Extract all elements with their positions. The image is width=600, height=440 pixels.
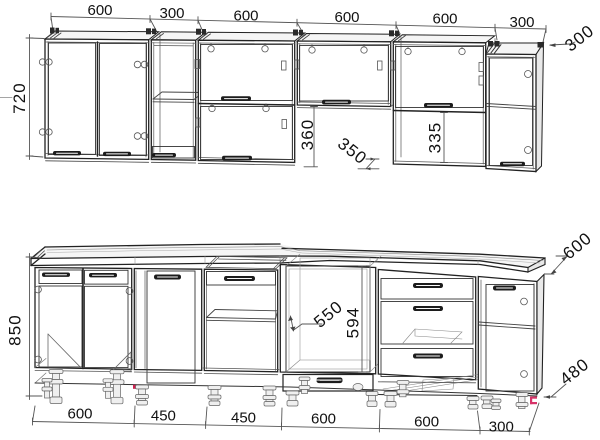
svg-text:450: 450 [231, 409, 256, 426]
svg-text:600: 600 [311, 410, 336, 427]
svg-text:600: 600 [233, 8, 258, 25]
svg-text:600: 600 [87, 2, 112, 19]
svg-text:300: 300 [561, 21, 598, 55]
svg-text:335: 335 [426, 122, 445, 154]
svg-text:600: 600 [334, 9, 359, 26]
svg-text:480: 480 [556, 354, 593, 388]
svg-text:300: 300 [509, 14, 534, 31]
svg-text:600: 600 [432, 11, 457, 28]
svg-text:450: 450 [151, 407, 176, 424]
svg-text:300: 300 [489, 418, 514, 435]
svg-text:360: 360 [298, 119, 317, 151]
svg-text:300: 300 [159, 5, 184, 22]
svg-text:720: 720 [10, 82, 29, 114]
svg-text:350: 350 [334, 134, 371, 168]
svg-text:600: 600 [67, 406, 92, 423]
svg-text:850: 850 [6, 314, 25, 346]
svg-text:600: 600 [414, 414, 439, 431]
